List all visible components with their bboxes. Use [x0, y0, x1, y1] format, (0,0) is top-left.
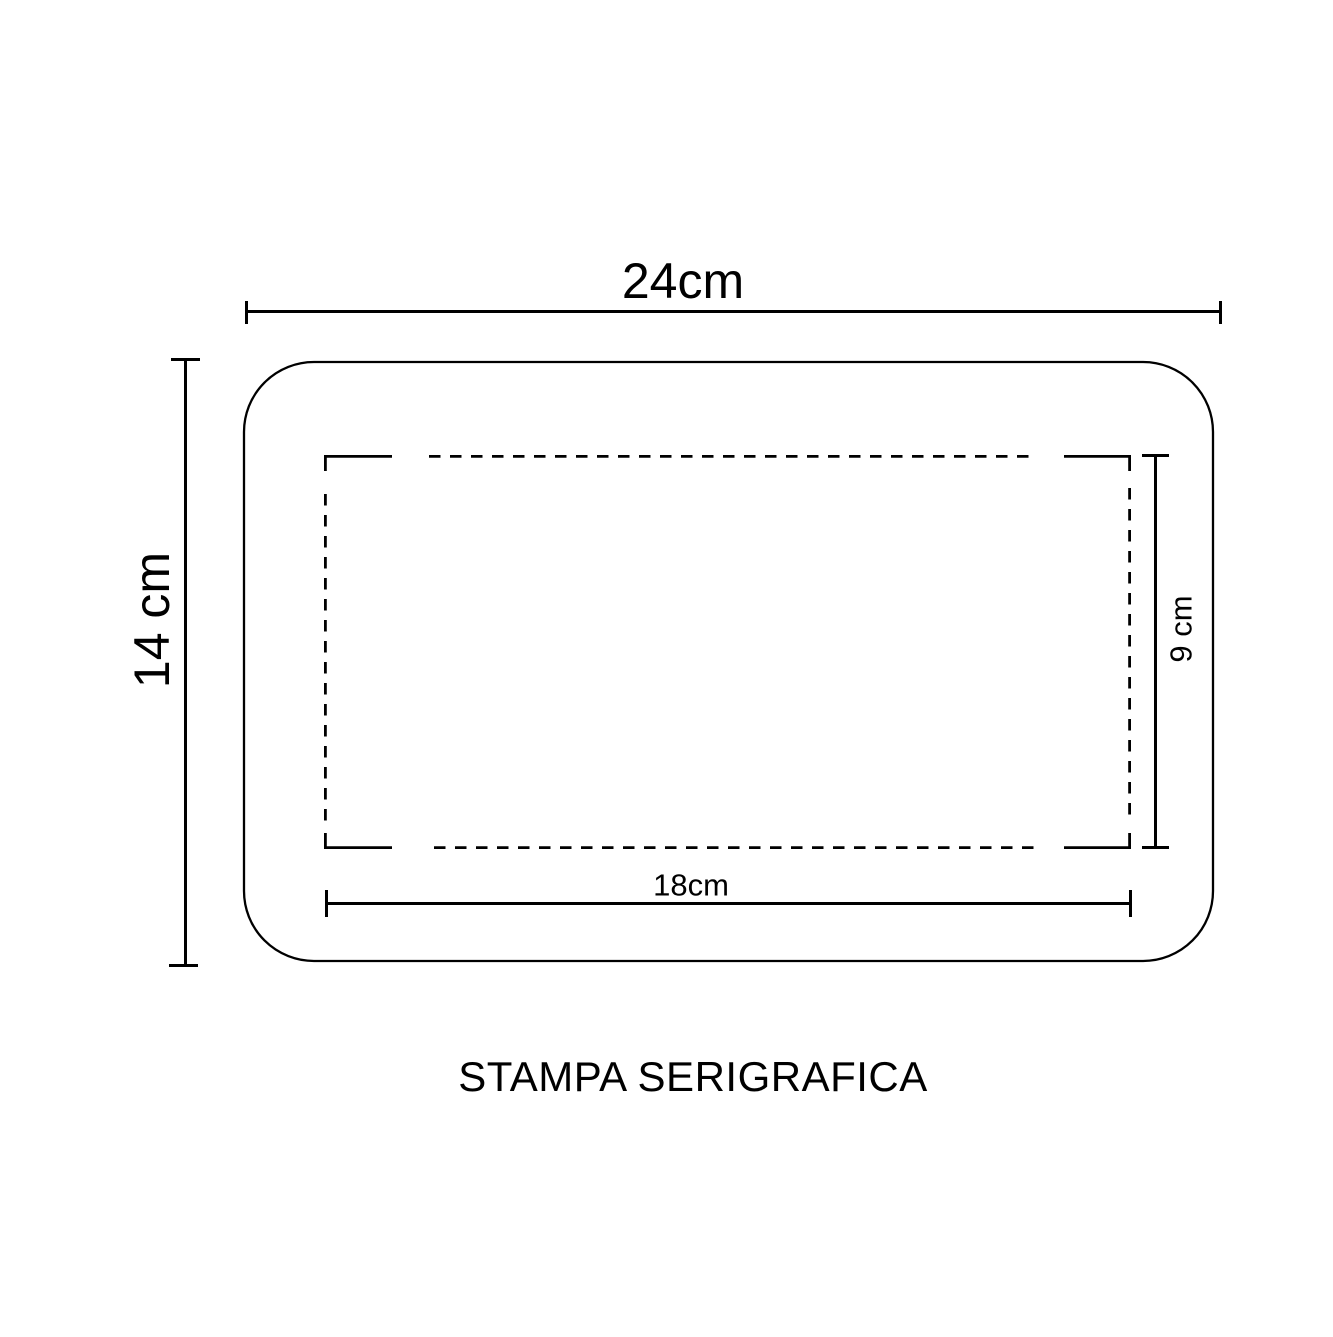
outer-width-label: 24cm	[622, 256, 744, 306]
print-area-corner-top-right	[1064, 456, 1130, 471]
serigraphy-dimension-diagram: 24cm 14 cm 9 cm 18cm STAMPA SERIGRAFICA	[0, 0, 1333, 1337]
outer-height-label: 14 cm	[127, 552, 177, 688]
print-area-corner-bottom-right	[1064, 833, 1130, 848]
print-area-corner-bottom-left	[325, 833, 392, 848]
print-area-dashed-edges	[325, 456, 1129, 847]
caption: STAMPA SERIGRAFICA	[458, 1053, 928, 1101]
print-width-label: 18cm	[653, 870, 729, 901]
drawing-canvas	[0, 0, 1333, 1337]
print-height-label: 9 cm	[1166, 595, 1197, 662]
print-area-corner-top-left	[325, 456, 392, 471]
print-area-corner-brackets	[325, 456, 1129, 847]
